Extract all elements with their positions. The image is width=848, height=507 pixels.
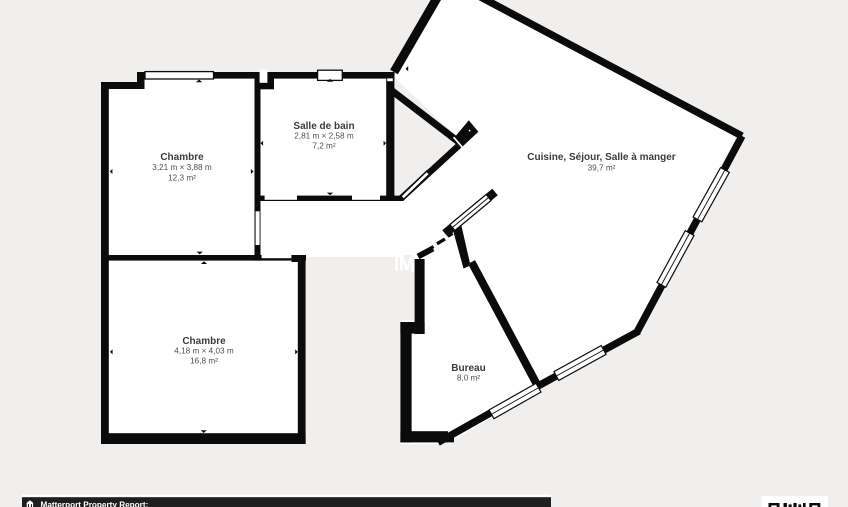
svg-text:4,18 m × 4,03 m: 4,18 m × 4,03 m [174, 347, 234, 356]
svg-text:Matterport Property Report:: Matterport Property Report: [41, 500, 149, 507]
svg-text:Chambre: Chambre [160, 152, 204, 163]
svg-text:39,7 m²: 39,7 m² [588, 163, 616, 172]
svg-text:Salle de bain: Salle de bain [293, 121, 354, 132]
svg-text:Bureau: Bureau [451, 363, 485, 374]
svg-text:Chambre: Chambre [182, 336, 226, 347]
svg-text:3,21 m × 3,88 m: 3,21 m × 3,88 m [152, 163, 212, 172]
svg-text:2,81 m × 2,58 m: 2,81 m × 2,58 m [294, 132, 354, 141]
svg-text:8,0 m²: 8,0 m² [457, 374, 480, 383]
svg-text:IM: IM [394, 255, 414, 276]
svg-text:Cuisine, Séjour, Salle à mange: Cuisine, Séjour, Salle à manger [527, 152, 675, 163]
svg-text:16,8 m²: 16,8 m² [190, 357, 218, 366]
svg-text:7,2 m²: 7,2 m² [312, 142, 335, 151]
svg-text:12,3 m²: 12,3 m² [168, 173, 196, 182]
